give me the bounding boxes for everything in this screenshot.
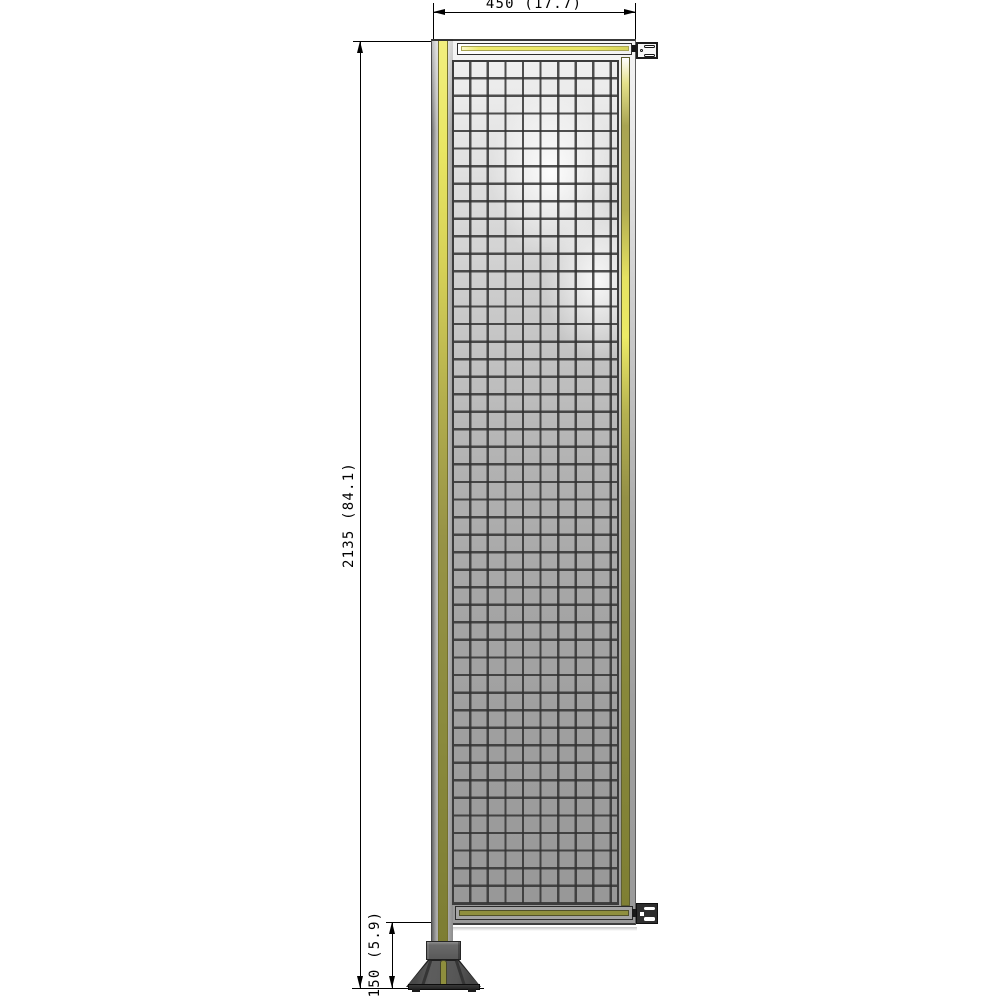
post-yellow-stripe (438, 41, 448, 943)
panel-bottom-shadow (453, 927, 637, 931)
arrow-up-icon (357, 41, 363, 53)
top-mounting-bracket (636, 42, 658, 59)
extension-line-top (353, 41, 432, 42)
arrow-up-icon (389, 922, 395, 934)
extension-line-foot-top (386, 922, 431, 923)
top-rail (457, 43, 632, 55)
bottom-rail-olive-strip (459, 910, 629, 916)
extension-line-right (635, 3, 636, 43)
arrow-down-icon (357, 976, 363, 988)
bracket-hole (640, 912, 644, 916)
foot-yellow-stripe (440, 960, 447, 985)
fence-post (431, 39, 453, 943)
dim-width-line (433, 12, 636, 13)
bottom-mounting-bracket (636, 903, 658, 924)
arrow-left-icon (433, 9, 445, 15)
top-rail-yellow-strip (461, 46, 629, 51)
dim-foot-label: 150 (5.9) (368, 909, 384, 999)
bracket-slot (644, 907, 655, 911)
foot-pad (412, 989, 420, 992)
bracket-slot (644, 54, 655, 57)
bracket-slot (644, 45, 655, 48)
foot-pad (468, 989, 476, 992)
arrow-down-icon (389, 976, 395, 988)
extension-line-left (433, 3, 434, 40)
technical-drawing-canvas: 450 (17.7) 2135 (84.1) 150 (5.9) (0, 0, 1000, 1000)
right-rail-yellow-strip (621, 57, 630, 906)
dim-height-line (360, 41, 361, 988)
bottom-rail (455, 906, 633, 920)
dim-height-label: 2135 (84.1) (342, 435, 358, 595)
bracket-slot (644, 917, 655, 921)
wire-mesh-panel (452, 60, 619, 905)
foot-collar (426, 941, 461, 960)
mesh-grid-lines (454, 62, 617, 903)
bracket-hole (640, 49, 643, 52)
